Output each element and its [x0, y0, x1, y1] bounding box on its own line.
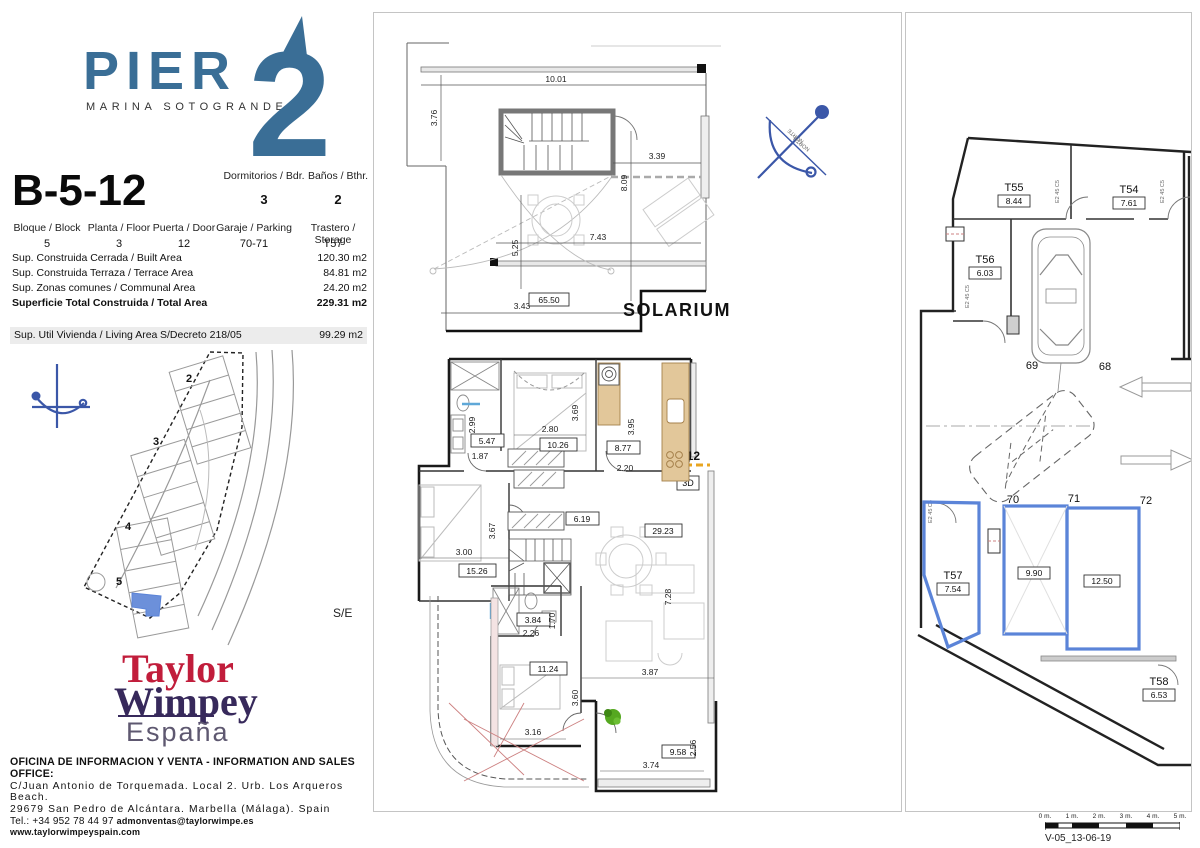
- room-living-area: 29.23: [652, 526, 674, 536]
- parking-labels: 69 68 70 71 72 9.90 12.50: [1007, 360, 1152, 587]
- living-area-label: Sup. Util Vivienda / Living Area: [14, 327, 157, 344]
- area-value: 120.30 m2: [317, 252, 367, 264]
- site-block-3: 3: [153, 436, 159, 448]
- dim: 2.99: [467, 416, 477, 433]
- scale-se-label: S/E: [333, 606, 352, 620]
- dim: 2.56: [688, 739, 698, 756]
- dim-solarium-midv: 5.25: [510, 239, 520, 256]
- storage-t54-id: T54: [1120, 184, 1139, 196]
- dim: 3.67: [487, 522, 497, 539]
- solarium-table: [528, 195, 584, 245]
- storage-t58-area: 6.53: [1151, 690, 1168, 700]
- room-bed2-area: 10.26: [547, 440, 569, 450]
- lane-arrow-right: [1121, 450, 1191, 470]
- scale-tick-0: 0 m.: [1039, 813, 1052, 820]
- solarium-stair: [501, 111, 637, 173]
- scale-tick-3: 3 m.: [1120, 813, 1133, 820]
- site-plan: 2 3 4 5: [20, 350, 350, 650]
- dim: 1.87: [472, 451, 489, 461]
- scale-tick-5: 5 m.: [1174, 813, 1187, 820]
- compass-icon: NORTE NORTH: [758, 105, 829, 178]
- storage-value: T57: [292, 238, 374, 250]
- pier-logo-2-sail: 2: [240, 10, 335, 170]
- site-block-2: 2: [186, 373, 192, 385]
- baths-label: Baños / Bthr.: [302, 170, 374, 182]
- parked-car: [1032, 229, 1090, 391]
- solarium-railing-top: [421, 67, 701, 72]
- solarium-plan: 10.01 3.76 3.39 8.09 7.43 5.25 3.43 65.5…: [407, 43, 731, 331]
- main-floor-plan: 5-12 3D: [419, 359, 716, 791]
- pier-logo-text: PIER: [83, 40, 237, 102]
- living-furniture: [596, 527, 704, 665]
- kitchen-fixtures: [598, 363, 689, 481]
- solarium-railing-right: [701, 116, 709, 198]
- floor-label: Planta / Floor: [86, 222, 152, 234]
- area-value: 84.81 m2: [323, 267, 367, 279]
- room-kitchen-area: 8.77: [615, 443, 632, 453]
- solarium-title: SOLARIUM: [623, 300, 731, 320]
- terrace-railing: [598, 779, 710, 787]
- dim: 7.28: [663, 588, 673, 605]
- area-row: Sup. Zonas comunes / Communal Area 24.20…: [12, 282, 367, 294]
- block-value: 5: [8, 238, 86, 250]
- column: [1007, 316, 1019, 334]
- block-label: Bloque / Block: [8, 222, 86, 234]
- area-total-label: Superficie Total Construida / Total Area: [12, 297, 207, 309]
- door-tag: E2 45 C5: [1055, 180, 1061, 203]
- storage-t57-area: 7.54: [945, 584, 962, 594]
- storage-walls: [953, 145, 1168, 321]
- wardrobes: [508, 449, 564, 530]
- spot-70: 70: [1007, 494, 1019, 506]
- door-label: Puerta / Door: [152, 222, 216, 234]
- dim-solarium-mid: 7.43: [590, 232, 607, 242]
- tree-icon: [604, 709, 621, 725]
- ramp-beam: [1041, 656, 1176, 661]
- highlighted-unit[interactable]: [132, 593, 161, 616]
- dim-solarium-left: 3.76: [429, 109, 439, 126]
- office-email[interactable]: admonventas@taylorwimpe.es: [117, 816, 254, 826]
- unit-code: B-5-12: [12, 166, 147, 216]
- area-row: Sup. Construida Terraza / Terrace Area 8…: [12, 267, 367, 279]
- living-area-decree: S/Decreto 218/05: [160, 327, 242, 344]
- solarium-area-value: 65.50: [538, 295, 560, 305]
- living-area-row: Sup. Util Vivienda / Living Area S/Decre…: [10, 327, 367, 344]
- garage-plan-panel: E2 45 C5 E2 45 C5 E2 45 C5 E2 45 C5: [905, 12, 1192, 812]
- baths-value: 2: [302, 192, 374, 207]
- balcony: [430, 596, 589, 787]
- door-value: 12: [152, 238, 216, 250]
- dim: 2.20: [617, 463, 634, 473]
- door-tag: E2 45 C5: [1160, 180, 1166, 203]
- storage-t54-area: 7.61: [1121, 198, 1138, 208]
- spot-69: 69: [1026, 360, 1038, 372]
- spot-68: 68: [1099, 361, 1111, 373]
- espana-logo-text: España: [126, 717, 230, 748]
- drawing-version: V-05_13-06-19: [1045, 833, 1111, 844]
- area-label: Sup. Construida Cerrada / Built Area: [12, 252, 182, 264]
- railing-post: [697, 64, 706, 73]
- area-value: 24.20 m2: [323, 282, 367, 294]
- storage-t58-id: T58: [1150, 676, 1169, 688]
- dim: 1.70: [547, 612, 557, 629]
- dim: 3.00: [456, 547, 473, 557]
- dim: 2.26: [523, 628, 540, 638]
- scale-bar: [1045, 822, 1180, 830]
- floor-value: 3: [86, 238, 152, 250]
- garage-plan: E2 45 C5 E2 45 C5 E2 45 C5 E2 45 C5: [906, 13, 1191, 811]
- room-bath1-area: 5.47: [479, 436, 496, 446]
- office-info: OFICINA DE INFORMACION Y VENTA - INFORMA…: [10, 756, 372, 838]
- office-website[interactable]: www.taylorwimpeyspain.com: [10, 827, 140, 837]
- solarium-railing-mid: [496, 261, 706, 266]
- living-area-value: 99.29 m2: [319, 327, 363, 344]
- drive-path: [1006, 393, 1056, 483]
- office-address-2: 29679 San Pedro de Alcántara. Marbella (…: [10, 804, 372, 815]
- dim: 2.80: [542, 424, 559, 434]
- dim-solarium-bottom: 3.43: [514, 301, 531, 311]
- spot-71-area: 12.50: [1091, 576, 1113, 586]
- compass-icon: [32, 364, 91, 428]
- door-tag: E2 45 C5: [965, 285, 971, 308]
- storage-t55-area: 8.44: [1006, 196, 1023, 206]
- room-bed1-area: 11.24: [538, 664, 559, 674]
- window-band-right: [708, 471, 714, 723]
- apartment-plan-panel: 10.01 3.76 3.39 8.09 7.43 5.25 3.43 65.5…: [373, 12, 902, 812]
- site-boundary: [84, 352, 243, 618]
- area-total-value: 229.31 m2: [317, 297, 367, 309]
- area-row: Sup. Construida Cerrada / Built Area 120…: [12, 252, 367, 264]
- room-bed3-area: 15.26: [466, 566, 488, 576]
- parking-value: 70-71: [216, 238, 292, 250]
- dim: 3.60: [570, 689, 580, 706]
- area-label: Sup. Zonas comunes / Communal Area: [12, 282, 195, 294]
- spot-70-area: 9.90: [1026, 568, 1043, 578]
- storage-t56-id: T56: [976, 254, 995, 266]
- room-terrace-area: 9.58: [670, 747, 687, 757]
- site-block-5: 5: [116, 576, 122, 588]
- storage-t56-area: 6.03: [977, 268, 994, 278]
- dim-solarium-right: 3.39: [649, 151, 666, 161]
- apartment-plan: 10.01 3.76 3.39 8.09 7.43 5.25 3.43 65.5…: [374, 13, 901, 811]
- area-label: Sup. Construida Terraza / Terrace Area: [12, 267, 193, 279]
- storage-t57-id: T57: [944, 570, 963, 582]
- dim: 3.74: [643, 760, 660, 770]
- office-contact: Tel.: +34 952 78 44 97 admonventas@taylo…: [10, 816, 372, 838]
- room-bath2-area: 3.84: [525, 615, 542, 625]
- scale-tick-4: 4 m.: [1147, 813, 1160, 820]
- office-phone: Tel.: +34 952 78 44 97: [10, 816, 114, 827]
- scale-tick-2: 2 m.: [1093, 813, 1106, 820]
- scale-tick-1: 1 m.: [1066, 813, 1079, 820]
- dim: 3.95: [626, 418, 636, 435]
- window-band-kitchen: [691, 363, 696, 457]
- floorplan-sheet: PIER MARINA SOTOGRANDE 2 B-5-12 Dormitor…: [0, 0, 1200, 848]
- office-title: OFICINA DE INFORMACION Y VENTA - INFORMA…: [10, 756, 372, 780]
- area-total-row: Superficie Total Construida / Total Area…: [12, 297, 367, 309]
- storage-t55-id: T55: [1005, 182, 1024, 194]
- dim: 3.69: [570, 404, 580, 421]
- room-hall-area: 6.19: [574, 514, 591, 524]
- dim: 3.87: [642, 667, 659, 677]
- dim-solarium-height: 8.09: [619, 174, 629, 191]
- site-block-4: 4: [125, 521, 132, 533]
- shade-sails: [430, 175, 614, 274]
- dim-solarium-width: 10.01: [545, 74, 567, 84]
- spot-72: 72: [1140, 495, 1152, 507]
- maneuver-car-path: [964, 385, 1100, 508]
- office-address-1: C/Juan Antonio de Torquemada. Local 2. U…: [10, 781, 372, 803]
- pier-logo-2-digit: 2: [248, 20, 331, 170]
- spot-71: 71: [1068, 493, 1080, 505]
- lane-arrow-left: [1120, 377, 1191, 397]
- parking-label: Garaje / Parking: [216, 222, 292, 234]
- dim: 3.16: [525, 727, 542, 737]
